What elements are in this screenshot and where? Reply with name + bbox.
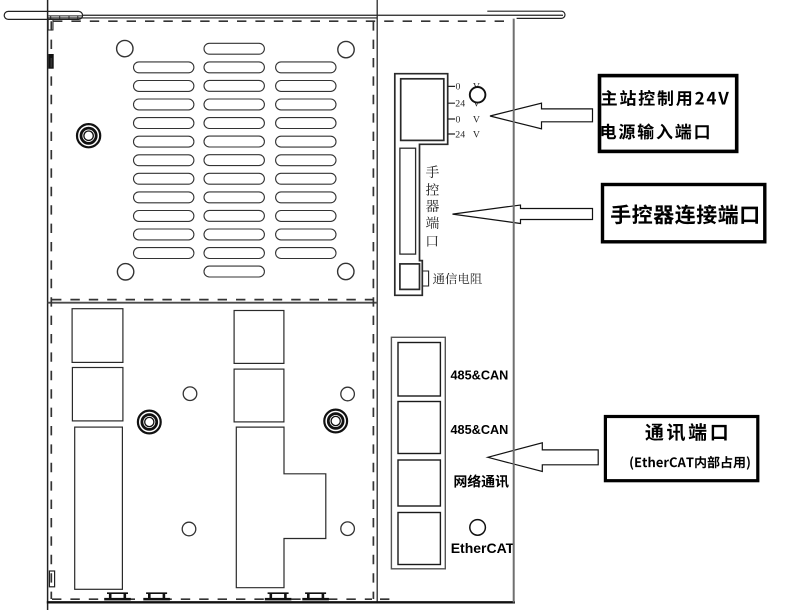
svg-text:V: V [473, 114, 480, 125]
svg-text:0: 0 [456, 82, 461, 93]
svg-text:V: V [473, 129, 480, 140]
svg-text:24: 24 [455, 129, 465, 140]
svg-text:485&CAN: 485&CAN [451, 423, 509, 437]
svg-text:485&CAN: 485&CAN [451, 368, 509, 382]
svg-text:24: 24 [455, 99, 465, 110]
svg-text:0: 0 [456, 114, 461, 125]
svg-text:EtherCAT: EtherCAT [451, 540, 515, 556]
